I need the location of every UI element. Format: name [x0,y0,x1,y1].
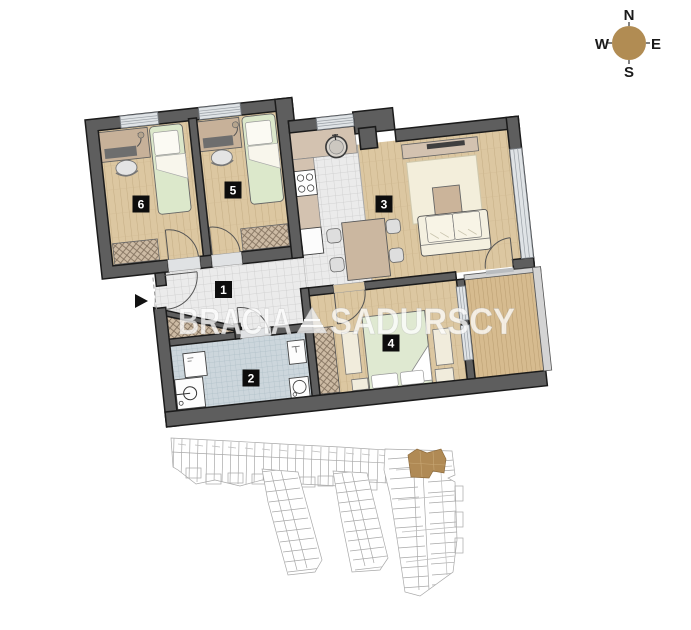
svg-text:N: N [624,7,635,24]
svg-text:6: 6 [138,198,145,212]
svg-text:W: W [595,36,610,53]
svg-text:1: 1 [220,283,227,297]
svg-text:4: 4 [388,337,395,351]
svg-text:S: S [624,64,634,81]
svg-text:3: 3 [381,198,388,212]
svg-text:E: E [651,36,661,53]
svg-text:2: 2 [248,372,255,386]
svg-text:5: 5 [230,184,237,198]
svg-text:BRACIA: BRACIA [178,301,292,342]
svg-text:SADURSCY: SADURSCY [330,301,515,342]
